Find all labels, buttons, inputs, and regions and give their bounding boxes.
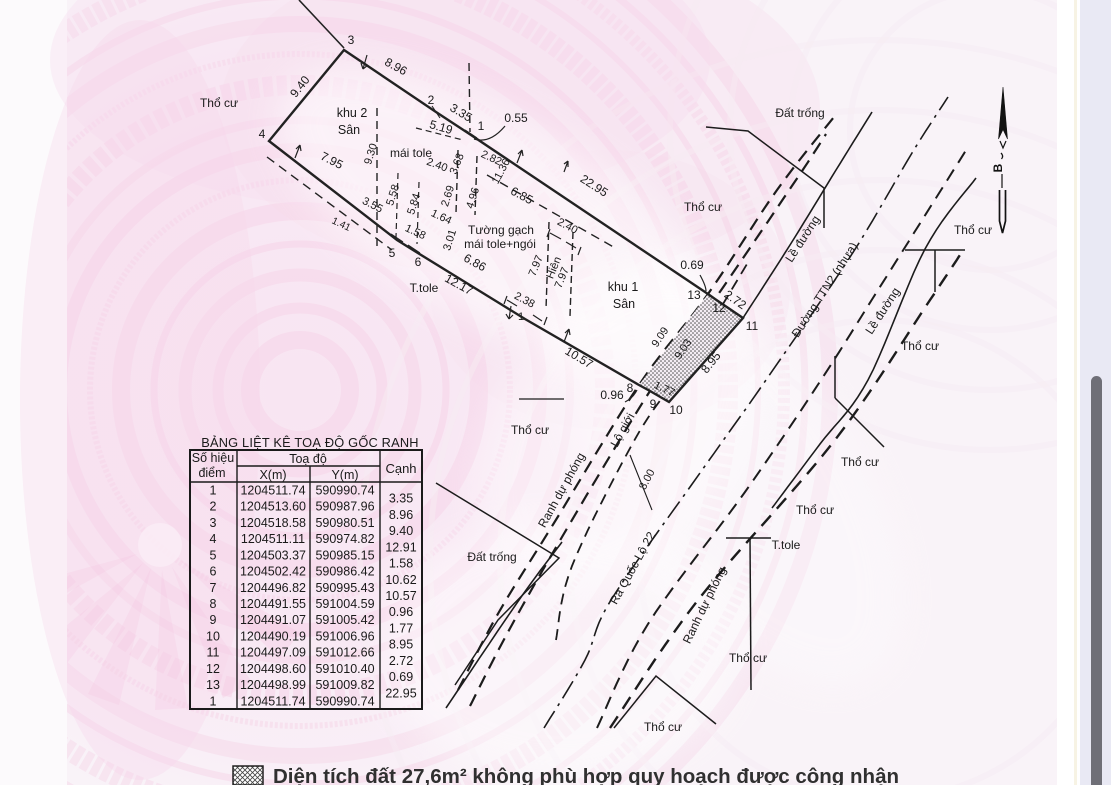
svg-text:B: B	[991, 163, 1005, 172]
svg-text:Y(m): Y(m)	[331, 468, 358, 482]
svg-text:13: 13	[687, 288, 701, 302]
svg-text:1204518.58: 1204518.58	[240, 516, 306, 530]
svg-text:590995.43: 590995.43	[315, 581, 374, 595]
svg-text:1204502.42: 1204502.42	[240, 565, 306, 579]
svg-text:590990.74: 590990.74	[315, 694, 374, 708]
svg-text:1204511.74: 1204511.74	[240, 694, 305, 708]
svg-text:8: 8	[627, 381, 634, 395]
svg-text:10: 10	[669, 403, 683, 417]
svg-text:1204503.37: 1204503.37	[240, 548, 306, 562]
svg-text:22.95: 22.95	[385, 686, 416, 700]
svg-text:590986.42: 590986.42	[315, 565, 374, 579]
svg-text:1: 1	[478, 119, 485, 133]
svg-text:Sân: Sân	[338, 123, 360, 137]
svg-text:Diện tích đất 27,6m² không phù: Diện tích đất 27,6m² không phù hợp quy h…	[273, 765, 899, 785]
svg-text:1204498.99: 1204498.99	[240, 678, 306, 692]
svg-text:X(m): X(m)	[259, 468, 286, 482]
svg-text:Sân: Sân	[613, 297, 635, 311]
svg-text:Thổ cư: Thổ cư	[200, 96, 238, 110]
svg-text:Thổ cư: Thổ cư	[684, 200, 722, 214]
svg-text:5: 5	[389, 246, 396, 260]
svg-text:8.95: 8.95	[389, 638, 413, 652]
svg-text:Tường gạch: Tường gạch	[468, 223, 534, 237]
svg-text:1204511.11: 1204511.11	[241, 532, 305, 546]
svg-text:5: 5	[210, 548, 217, 562]
svg-text:1204511.74: 1204511.74	[240, 484, 305, 498]
svg-text:3.35: 3.35	[389, 492, 413, 506]
svg-text:1204491.55: 1204491.55	[240, 597, 306, 611]
svg-text:Thổ cư: Thổ cư	[954, 223, 992, 237]
svg-text:10.57: 10.57	[385, 589, 416, 603]
svg-text:591005.42: 591005.42	[315, 613, 374, 627]
svg-text:Thổ cư: Thổ cư	[644, 720, 682, 734]
svg-text:T.tole: T.tole	[772, 538, 801, 552]
svg-text:591009.82: 591009.82	[315, 678, 374, 692]
svg-text:1204496.82: 1204496.82	[240, 581, 306, 595]
svg-text:9.40: 9.40	[389, 524, 413, 538]
svg-text:Thổ cư: Thổ cư	[841, 455, 879, 469]
svg-text:3: 3	[348, 33, 355, 47]
svg-text:Toạ độ: Toạ độ	[289, 452, 327, 466]
svg-text:3: 3	[210, 516, 217, 530]
svg-text:12: 12	[712, 301, 726, 315]
svg-text:Thổ cư: Thổ cư	[729, 651, 767, 665]
svg-text:khu 1: khu 1	[608, 280, 639, 294]
svg-text:6: 6	[415, 255, 422, 269]
svg-text:Thổ cư: Thổ cư	[901, 339, 939, 353]
svg-text:591006.96: 591006.96	[315, 629, 374, 643]
svg-text:4: 4	[210, 532, 217, 546]
svg-text:13: 13	[206, 678, 220, 692]
svg-text:11: 11	[207, 646, 220, 660]
svg-text:8: 8	[210, 597, 217, 611]
svg-text:590990.74: 590990.74	[315, 484, 374, 498]
svg-text:0.96: 0.96	[600, 388, 624, 402]
svg-text:1204491.07: 1204491.07	[240, 613, 306, 627]
svg-text:Số hiệu: Số hiệu	[192, 451, 234, 465]
svg-text:Thổ cư: Thổ cư	[796, 503, 834, 517]
svg-text:11: 11	[746, 319, 759, 333]
svg-text:9: 9	[650, 397, 657, 411]
svg-text:Đất trống: Đất trống	[775, 106, 824, 120]
svg-text:1.58: 1.58	[389, 557, 413, 571]
svg-text:590980.51: 590980.51	[315, 516, 374, 530]
svg-text:1204498.60: 1204498.60	[240, 662, 306, 676]
svg-text:0.69: 0.69	[389, 670, 413, 684]
svg-text:điểm: điểm	[198, 466, 225, 480]
svg-text:6: 6	[210, 565, 217, 579]
svg-text:1204490.19: 1204490.19	[240, 629, 306, 643]
svg-text:Đất trống: Đất trống	[467, 550, 516, 564]
svg-text:2: 2	[428, 93, 435, 107]
svg-text:2: 2	[210, 500, 217, 514]
svg-text:1: 1	[210, 484, 217, 498]
svg-text:mái tole: mái tole	[390, 146, 432, 160]
svg-text:Cạnh: Cạnh	[385, 461, 416, 476]
svg-text:1: 1	[518, 311, 524, 323]
svg-text:590974.82: 590974.82	[315, 532, 374, 546]
svg-text:T.tole: T.tole	[410, 281, 439, 295]
svg-text:mái tole+ngói: mái tole+ngói	[464, 237, 536, 251]
svg-text:7: 7	[210, 581, 217, 595]
svg-text:2.72: 2.72	[389, 654, 413, 668]
svg-text:khu 2: khu 2	[337, 106, 368, 120]
svg-text:10.62: 10.62	[385, 573, 416, 587]
svg-text:0.55: 0.55	[504, 111, 528, 125]
svg-text:1.77: 1.77	[389, 621, 413, 635]
svg-text:0.69: 0.69	[680, 258, 704, 272]
svg-text:591012.66: 591012.66	[315, 646, 374, 660]
svg-text:591010.40: 591010.40	[315, 662, 374, 676]
svg-text:10: 10	[206, 629, 220, 643]
svg-text:BẢNG LIỆT KÊ TOẠ ĐỘ GỐC RANH: BẢNG LIỆT KÊ TOẠ ĐỘ GỐC RANH	[201, 435, 419, 450]
svg-text:1204497.09: 1204497.09	[240, 646, 306, 660]
svg-text:590987.96: 590987.96	[315, 500, 374, 514]
svg-text:8.96: 8.96	[389, 508, 413, 522]
svg-text:12: 12	[206, 662, 220, 676]
svg-text:590985.15: 590985.15	[315, 548, 374, 562]
svg-text:Thổ cư: Thổ cư	[511, 423, 549, 437]
svg-text:0.96: 0.96	[389, 605, 413, 619]
svg-text:12.91: 12.91	[385, 540, 416, 554]
svg-text:9: 9	[210, 613, 217, 627]
svg-text:4: 4	[259, 127, 266, 141]
svg-text:1: 1	[210, 694, 217, 708]
svg-text:591004.59: 591004.59	[315, 597, 374, 611]
svg-text:1204513.60: 1204513.60	[240, 500, 306, 514]
